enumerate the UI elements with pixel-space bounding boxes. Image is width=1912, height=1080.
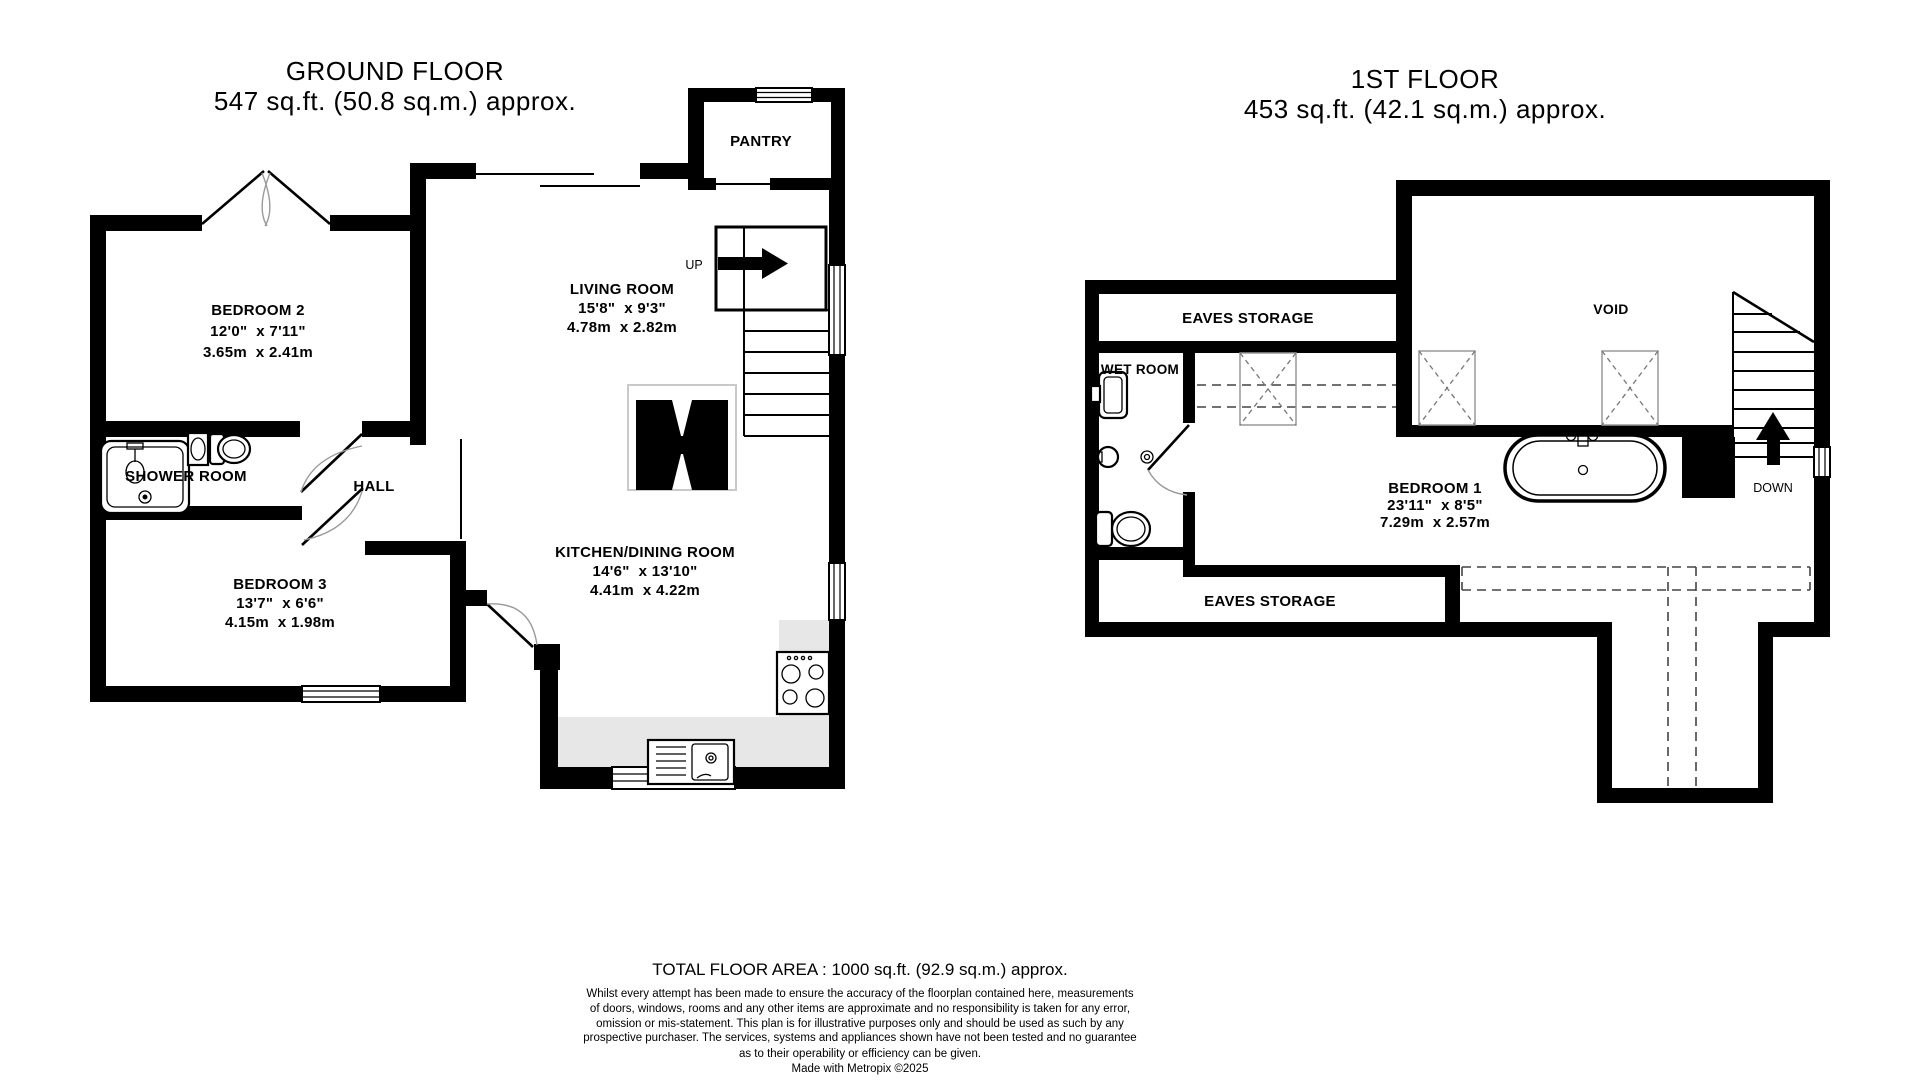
bedroom3-name: BEDROOM 3 xyxy=(233,576,327,593)
window xyxy=(829,265,845,355)
bedroom1-name: BEDROOM 1 xyxy=(1388,480,1482,497)
kitchen-sink-icon xyxy=(648,740,734,784)
door-kitchen xyxy=(487,604,537,647)
skylight xyxy=(1419,351,1475,425)
door-wet-room xyxy=(1148,425,1189,495)
wet-room-name: WET ROOM xyxy=(1101,362,1179,377)
disclaimer-line: omission or mis-statement. This plan is … xyxy=(596,1018,1124,1030)
bedroom1-imperial: 23'11" x 8'5" xyxy=(1387,497,1483,514)
french-doors xyxy=(202,171,330,226)
hall-name: HALL xyxy=(353,478,394,495)
bedroom3-imperial: 13'7" x 6'6" xyxy=(236,595,324,612)
window xyxy=(756,88,812,102)
total-floor-area: TOTAL FLOOR AREA : 1000 sq.ft. (92.9 sq.… xyxy=(652,960,1067,979)
disclaimer-line: Whilst every attempt has been made to en… xyxy=(586,988,1133,1000)
sink-icon xyxy=(1096,447,1118,467)
eaves-storage-top-name: EAVES STORAGE xyxy=(1182,310,1314,327)
living-room-name: LIVING ROOM xyxy=(570,281,674,298)
disclaimer-line: prospective purchaser. The services, sys… xyxy=(583,1032,1136,1044)
shower-room-name: SHOWER ROOM xyxy=(125,468,247,485)
first-floor-title: 1ST FLOOR xyxy=(1351,64,1500,94)
bedroom3-metric: 4.15m x 1.98m xyxy=(225,614,335,631)
door-bedroom3 xyxy=(302,488,363,545)
footer: TOTAL FLOOR AREA : 1000 sq.ft. (92.9 sq.… xyxy=(583,960,1136,1075)
credit-line: Made with Metropix ©2025 xyxy=(792,1063,929,1075)
bedroom2-imperial: 12'0" x 7'11" xyxy=(210,323,306,340)
down-label: DOWN xyxy=(1753,481,1793,495)
toilet-icon xyxy=(1096,512,1150,546)
kitchen-imperial: 14'6" x 13'10" xyxy=(592,563,697,580)
first-floor-area: 453 sq.ft. (42.1 sq.m.) approx. xyxy=(1244,94,1606,124)
ground-floor-area: 547 sq.ft. (50.8 sq.m.) approx. xyxy=(214,86,576,116)
skylight xyxy=(1240,353,1296,425)
living-room-metric: 4.78m x 2.82m xyxy=(567,319,677,336)
bedroom2-name: BEDROOM 2 xyxy=(211,302,305,319)
bedroom2-metric: 3.65m x 2.41m xyxy=(203,344,313,361)
floorplan-graphic: GROUND FLOOR 547 sq.ft. (50.8 sq.m.) app… xyxy=(0,0,1912,1080)
floorplan-page: GROUND FLOOR 547 sq.ft. (50.8 sq.m.) app… xyxy=(0,0,1912,1080)
ground-floor-title: GROUND FLOOR xyxy=(286,56,504,86)
kitchen-metric: 4.41m x 4.22m xyxy=(590,582,700,599)
window xyxy=(829,563,845,620)
hob-icon xyxy=(777,652,829,714)
disclaimer-line: of doors, windows, rooms and any other i… xyxy=(590,1003,1130,1015)
pantry-name: PANTRY xyxy=(730,133,792,150)
windows xyxy=(302,88,845,789)
fireplace-icon xyxy=(628,385,736,490)
living-room-imperial: 15'8" x 9'3" xyxy=(578,300,666,317)
toilet-icon xyxy=(210,434,250,464)
void-name: VOID xyxy=(1593,301,1628,317)
window xyxy=(1814,447,1830,477)
first-floor-plan: 1ST FLOOR 453 sq.ft. (42.1 sq.m.) approx… xyxy=(1085,64,1830,803)
sink-icon xyxy=(188,433,208,465)
up-label: UP xyxy=(685,258,702,272)
eaves-storage-bottom-name: EAVES STORAGE xyxy=(1204,593,1336,610)
bath-icon xyxy=(1505,430,1665,501)
drain-icon xyxy=(1141,451,1153,463)
bedroom1-metric: 7.29m x 2.57m xyxy=(1380,514,1490,531)
ground-floor-plan: GROUND FLOOR 547 sq.ft. (50.8 sq.m.) app… xyxy=(90,56,845,789)
kitchen-name: KITCHEN/DINING ROOM xyxy=(555,544,735,561)
stairs-down: DOWN xyxy=(1733,292,1814,495)
disclaimer-line: as to their operability or efficiency ca… xyxy=(739,1048,981,1060)
window xyxy=(302,686,380,702)
skylight xyxy=(1602,351,1658,425)
